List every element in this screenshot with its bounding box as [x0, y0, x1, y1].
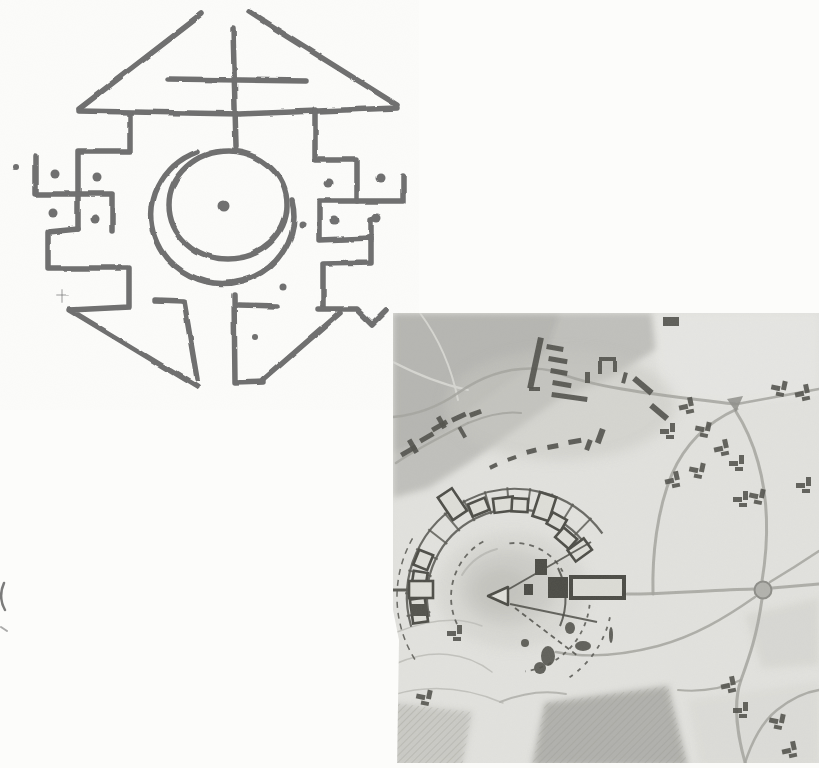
glyph-dot: [49, 209, 58, 218]
symbol-drawing-figure: [0, 0, 419, 410]
glyph-dot: [373, 214, 382, 223]
symbol-drawing: [0, 0, 419, 410]
glyph-stroke: [233, 29, 236, 147]
map-photo-edge: [393, 763, 819, 768]
glyph-stroke: [238, 305, 278, 306]
page-edge-artifacts: [0, 560, 14, 650]
edge-artifact-mark: [1, 583, 5, 610]
glyph-dot: [280, 284, 287, 291]
glyph-dot: [376, 174, 385, 183]
edge-artifact-mark: [1, 627, 7, 631]
glyph-dot: [93, 174, 102, 183]
symbol-paper-grain: [0, 0, 419, 410]
glyph-dot: [91, 215, 100, 224]
glyph-dot: [252, 334, 258, 340]
glyph-dot: [51, 170, 60, 179]
glyph-dot: [331, 217, 340, 226]
glyph-stroke: [168, 79, 306, 81]
glyph-dot: [299, 221, 306, 228]
glyph-dot: [219, 201, 230, 212]
map-content-layer: [393, 313, 819, 768]
topographic-map: [393, 313, 819, 768]
site-map-figure: [393, 313, 819, 768]
glyph-dot: [12, 163, 18, 169]
glyph-dot: [324, 179, 333, 188]
map-scan-grain: [393, 313, 819, 768]
